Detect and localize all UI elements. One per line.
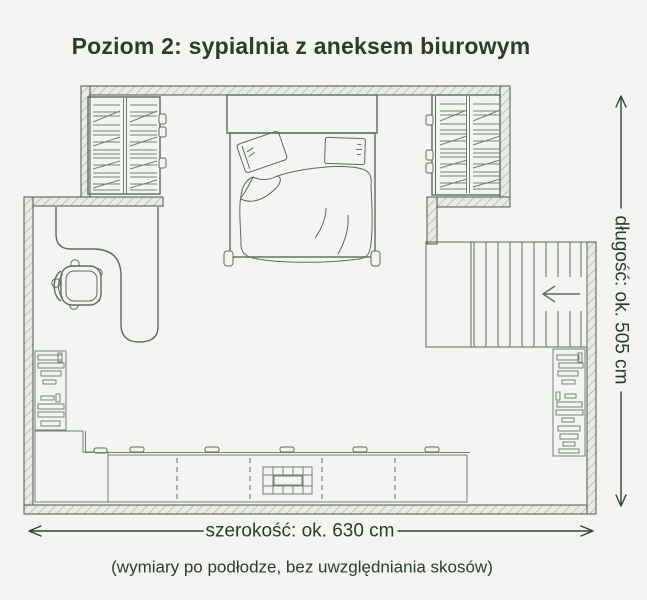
- corner-cabinet: [35, 431, 108, 502]
- wall-top: [81, 86, 510, 95]
- basket: [263, 467, 312, 494]
- books: [556, 353, 583, 453]
- page-title: Poziom 2: sypialnia z aneksem biurowym: [72, 33, 531, 59]
- bed-foot-left: [224, 251, 233, 266]
- wall-left-step: [24, 197, 163, 206]
- bed-mattress: [230, 133, 375, 257]
- wall-right-step-v: [427, 197, 437, 244]
- bed: [224, 95, 380, 266]
- wardrobe-right: [426, 95, 500, 195]
- bed-duvet: [240, 167, 372, 263]
- bookshelf-left: [35, 351, 66, 430]
- wall-bottom: [24, 505, 596, 514]
- chair-seat: [61, 266, 101, 305]
- wall-right: [587, 242, 596, 514]
- wardrobe-left: [88, 97, 166, 194]
- stairs: [426, 242, 587, 347]
- bed-foot-right: [371, 251, 380, 266]
- cabinet-handles: [130, 447, 439, 452]
- floor-plan-page: Poziom 2: sypialnia z aneksem biurowym: [0, 0, 647, 600]
- length-dimension: długość: ok. 505 cm: [611, 96, 632, 506]
- bed-headboard: [227, 95, 377, 133]
- books: [38, 353, 64, 426]
- width-dimension: szerokość: ok. 630 cm: [29, 521, 593, 542]
- stairs-direction-arrow-icon: [543, 286, 580, 302]
- pillow-left: [236, 131, 287, 174]
- pillow-right: [325, 137, 366, 164]
- wall-alcove-right: [500, 86, 510, 207]
- length-dimension-label: długość: ok. 505 cm: [611, 216, 632, 385]
- floor-plan: Poziom 2: sypialnia z aneksem biurowym: [0, 0, 647, 600]
- low-cabinet-run: [85, 447, 470, 502]
- office-chair: [52, 260, 102, 309]
- wall-right-step-h: [427, 197, 510, 207]
- dimension-footnote: (wymiary po podłodze, bez uwzględniania …: [111, 558, 493, 577]
- bookshelf-right: [553, 349, 585, 456]
- wall-left: [24, 197, 33, 514]
- width-dimension-label: szerokość: ok. 630 cm: [205, 521, 394, 542]
